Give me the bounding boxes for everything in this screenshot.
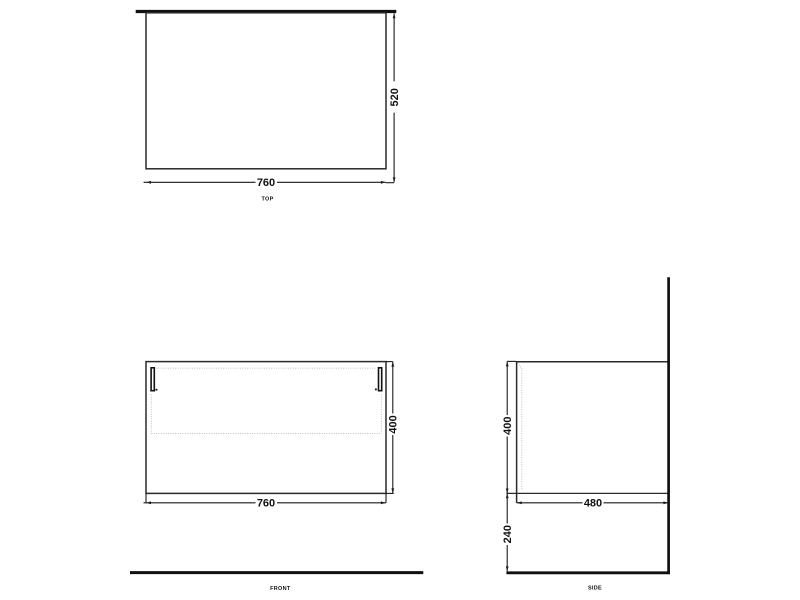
svg-text:400: 400 [388,415,400,433]
svg-text:400: 400 [502,417,514,435]
svg-text:SIDE: SIDE [588,586,602,592]
svg-text:760: 760 [257,498,275,510]
svg-text:TOP: TOP [261,197,273,203]
svg-text:480: 480 [584,498,602,510]
svg-text:240: 240 [502,525,514,543]
svg-text:760: 760 [257,177,275,189]
svg-text:520: 520 [389,88,401,106]
svg-text:FRONT: FRONT [270,586,291,592]
